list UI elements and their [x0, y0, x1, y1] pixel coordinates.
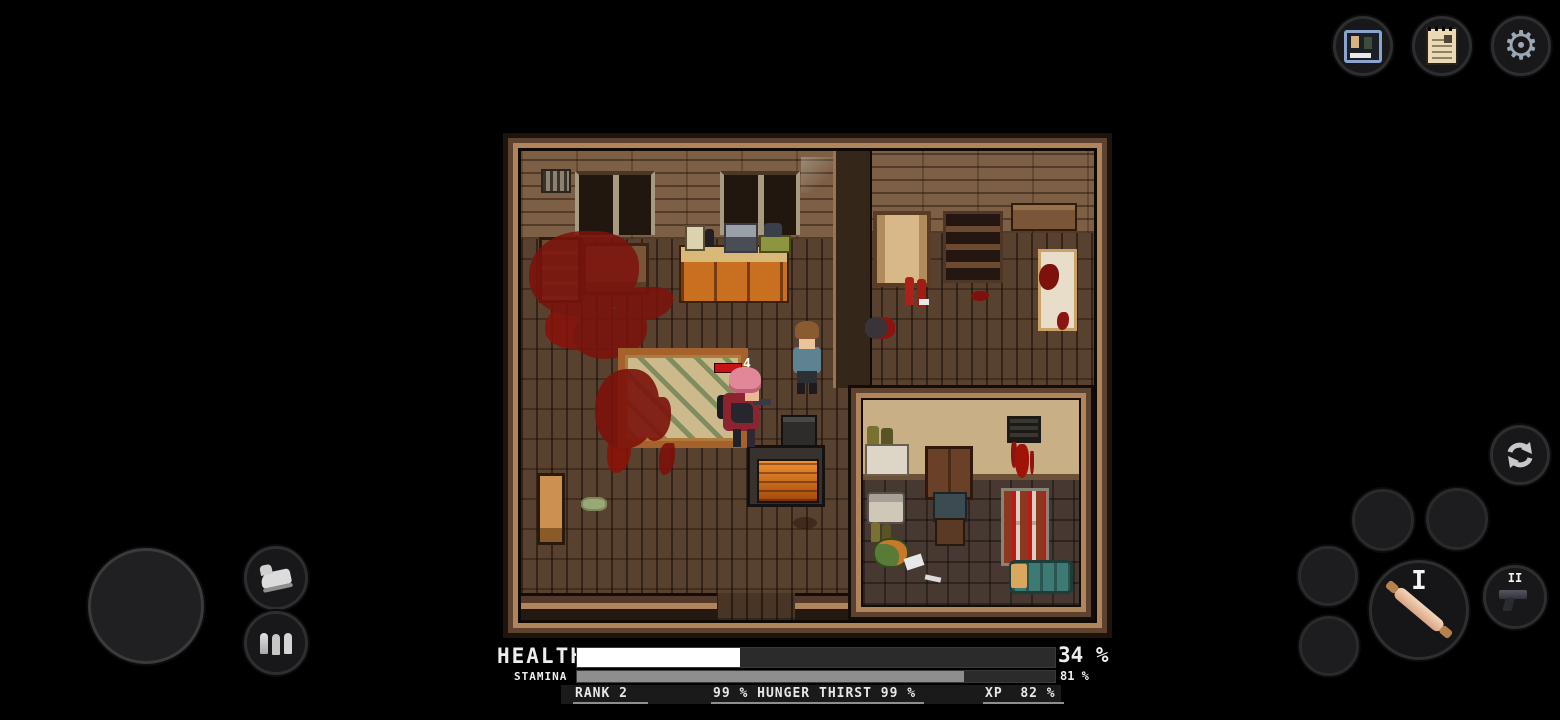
stove-fire-window	[757, 459, 819, 503]
corpse	[865, 317, 895, 339]
gear-icon: ⚙	[1503, 26, 1539, 66]
backpack	[764, 223, 782, 237]
bottle	[705, 229, 714, 247]
inner-room-interior	[863, 400, 1079, 605]
health-label: HEALTH	[497, 644, 585, 668]
sneaker-icon	[260, 568, 292, 589]
settings-button[interactable]: ⚙	[1491, 16, 1551, 76]
shelving-unit	[943, 211, 1003, 283]
ammo-button[interactable]	[244, 611, 308, 675]
action-button-4[interactable]	[1299, 616, 1359, 676]
olive-bottles	[867, 426, 879, 444]
action-button-3[interactable]	[1298, 546, 1358, 606]
survivor-card-button[interactable]	[1333, 16, 1393, 76]
game-viewport: 4	[503, 133, 1112, 638]
thirst-label: THIRST	[819, 686, 872, 701]
npc-legs	[797, 383, 805, 394]
stamina-bar-fill	[577, 671, 964, 682]
blood-spot-floor	[971, 291, 989, 301]
inner-vent	[1007, 416, 1041, 443]
red-canisters	[905, 277, 914, 305]
doorway-opening	[717, 593, 795, 620]
bandage-item	[919, 299, 929, 305]
npc-hair	[795, 321, 819, 339]
stats-strip: RANK 2 99 % HUNGER THIRST 99 % XP 82 %	[561, 685, 1061, 704]
thirst-stat: THIRST 99 %	[817, 686, 924, 704]
note-paper-icon	[1426, 27, 1458, 65]
bed	[1038, 249, 1077, 331]
photo-card-icon	[1344, 30, 1382, 63]
paper-money-item	[581, 497, 607, 511]
blood-drip	[1015, 444, 1029, 478]
green-basket	[873, 538, 909, 568]
inner-counter	[865, 444, 909, 476]
stacked-pots	[685, 225, 705, 251]
inner-room	[848, 385, 1094, 620]
rank-label: RANK	[575, 686, 610, 701]
bottle-shelf	[1001, 488, 1049, 566]
weapon-slot-2-label: II	[1486, 571, 1544, 585]
chair-seat	[935, 518, 965, 546]
xp-label: XP	[985, 686, 1003, 701]
window-left	[575, 171, 655, 235]
sink	[867, 492, 905, 524]
weapon-slot-2[interactable]: II	[1483, 565, 1547, 629]
npc-pants	[797, 371, 817, 383]
action-button-1[interactable]	[1352, 489, 1414, 551]
blood-pool-shelf	[529, 231, 639, 317]
movement-joystick[interactable]	[88, 548, 204, 664]
player-pink-hair	[717, 367, 773, 451]
notes-button[interactable]	[1412, 16, 1472, 76]
health-bar-fill	[577, 648, 740, 667]
health-value: 34 %	[1058, 643, 1109, 667]
stamina-bar	[576, 670, 1056, 683]
oven	[724, 223, 758, 253]
sprint-button[interactable]	[244, 546, 308, 610]
xp-value: 82 %	[1020, 686, 1055, 701]
game-scene: 4	[521, 151, 1094, 620]
swap-arrows-icon	[1504, 439, 1536, 471]
player-legs	[733, 429, 741, 447]
npc-shirt	[793, 347, 821, 373]
room-divider-wall	[833, 151, 872, 388]
wall-shelf	[1011, 203, 1077, 231]
stamina-value: 81 %	[1060, 669, 1089, 683]
health-bar	[576, 647, 1056, 668]
cobweb	[801, 157, 833, 193]
hunger-stat: 99 % HUNGER	[711, 686, 818, 704]
player-pink-hair-top	[729, 367, 761, 393]
weapon-slot-1-label: I	[1372, 566, 1466, 596]
switch-weapon-button[interactable]	[1490, 425, 1550, 485]
hunger-value: 99 %	[713, 686, 748, 701]
bottom-wall-left	[521, 593, 717, 620]
rank-stat: RANK 2	[573, 686, 648, 704]
floor-bottles	[871, 522, 880, 542]
wardrobe-open	[873, 211, 931, 287]
camp-stove	[759, 235, 791, 253]
pistol-icon	[1499, 590, 1527, 599]
thirst-value: 99 %	[881, 686, 916, 701]
open-door-panel	[537, 473, 565, 545]
dirt-smudge	[793, 517, 817, 529]
action-button-2[interactable]	[1426, 488, 1488, 550]
weapon-slot-1[interactable]: I	[1369, 560, 1469, 660]
xp-stat: XP 82 %	[983, 686, 1064, 704]
kitchen-counter	[679, 245, 789, 303]
hunger-label: HUNGER	[757, 686, 810, 701]
survivor-npc	[789, 321, 825, 395]
wall-vent-grate	[541, 169, 571, 193]
blood-on-bed	[1039, 264, 1059, 290]
rank-value: 2	[619, 686, 628, 701]
bottom-wall-right	[795, 593, 851, 620]
bullets-icon	[260, 633, 268, 654]
bag-flap	[1011, 564, 1027, 588]
stamina-label: STAMINA	[514, 670, 567, 683]
